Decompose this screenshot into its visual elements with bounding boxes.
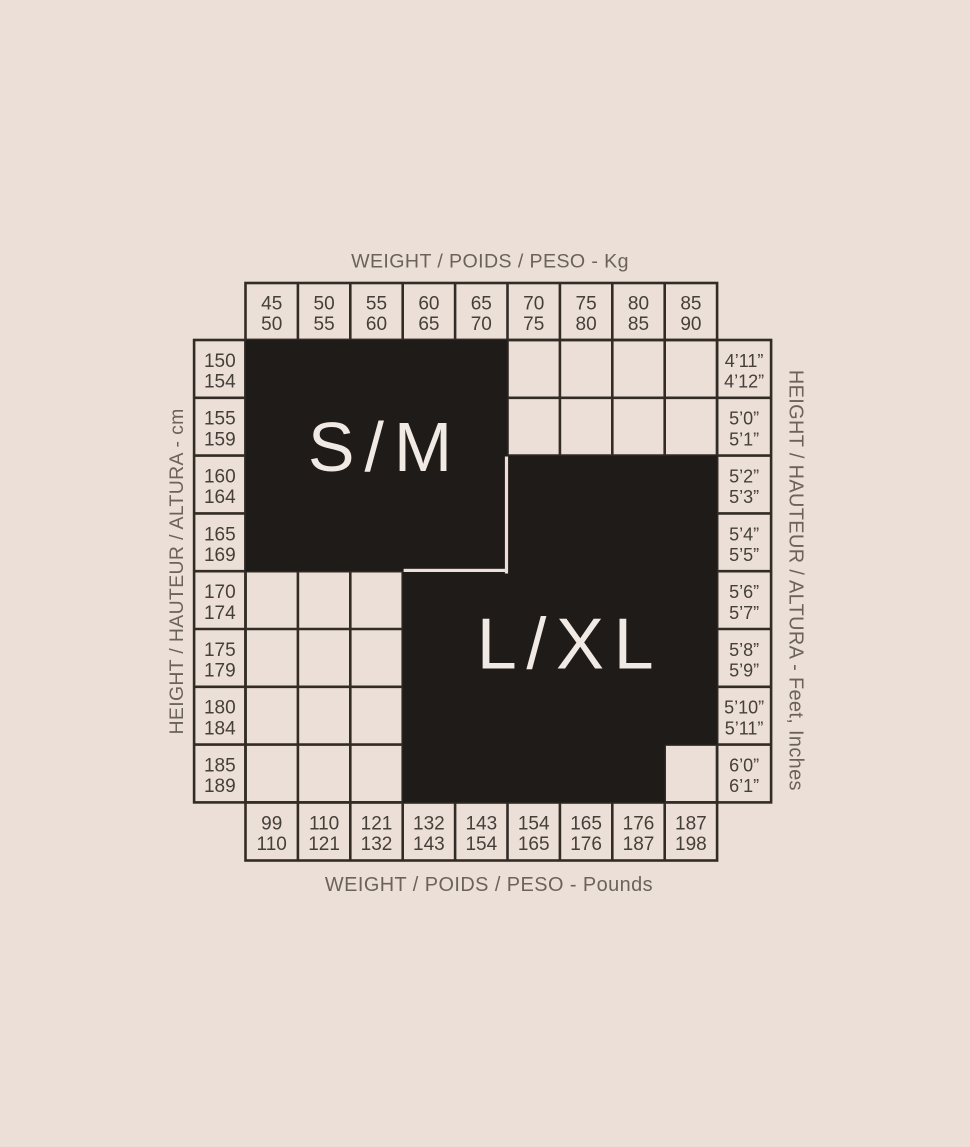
svg-text:4’11”: 4’11” bbox=[725, 351, 764, 371]
svg-text:5’6”: 5’6” bbox=[729, 582, 759, 602]
svg-text:5’11”: 5’11” bbox=[725, 718, 764, 738]
svg-text:5’5”: 5’5” bbox=[729, 545, 759, 565]
svg-text:HEIGHT / HAUTEUR / ALTURA - Fe: HEIGHT / HAUTEUR / ALTURA - Feet, Inches bbox=[785, 370, 807, 791]
svg-text:5’7”: 5’7” bbox=[729, 603, 759, 623]
svg-text:45: 45 bbox=[261, 294, 282, 315]
svg-text:179: 179 bbox=[204, 661, 236, 682]
svg-text:WEIGHT / POIDS / PESO - Pounds: WEIGHT / POIDS / PESO - Pounds bbox=[325, 874, 653, 896]
svg-text:5’3”: 5’3” bbox=[729, 487, 759, 507]
svg-text:143: 143 bbox=[413, 834, 445, 855]
svg-text:184: 184 bbox=[204, 718, 236, 739]
svg-text:121: 121 bbox=[308, 834, 340, 855]
svg-text:50: 50 bbox=[261, 314, 282, 335]
svg-text:155: 155 bbox=[204, 409, 236, 430]
svg-text:80: 80 bbox=[576, 314, 597, 335]
svg-text:6’1”: 6’1” bbox=[729, 776, 759, 796]
svg-text:170: 170 bbox=[204, 582, 236, 603]
svg-text:5’2”: 5’2” bbox=[729, 467, 759, 487]
svg-text:185: 185 bbox=[204, 756, 236, 777]
svg-text:164: 164 bbox=[204, 487, 236, 508]
svg-text:90: 90 bbox=[680, 314, 701, 335]
svg-text:75: 75 bbox=[576, 294, 597, 315]
svg-text:80: 80 bbox=[628, 294, 649, 315]
svg-text:85: 85 bbox=[680, 294, 701, 315]
svg-text:60: 60 bbox=[366, 314, 387, 335]
svg-text:99: 99 bbox=[261, 814, 282, 835]
svg-text:85: 85 bbox=[628, 314, 649, 335]
svg-text:165: 165 bbox=[204, 524, 236, 545]
svg-text:159: 159 bbox=[204, 429, 236, 450]
svg-text:154: 154 bbox=[518, 814, 550, 835]
svg-text:132: 132 bbox=[361, 834, 393, 855]
svg-text:HEIGHT / HAUTEUR / ALTURA - cm: HEIGHT / HAUTEUR / ALTURA - cm bbox=[166, 408, 188, 734]
svg-text:70: 70 bbox=[471, 314, 492, 335]
svg-text:75: 75 bbox=[523, 314, 544, 335]
svg-text:5’8”: 5’8” bbox=[729, 640, 759, 660]
svg-text:S/M: S/M bbox=[308, 408, 462, 486]
svg-text:150: 150 bbox=[204, 351, 236, 372]
svg-text:5’9”: 5’9” bbox=[729, 661, 759, 681]
svg-text:60: 60 bbox=[418, 294, 439, 315]
svg-text:165: 165 bbox=[570, 814, 602, 835]
svg-text:187: 187 bbox=[675, 814, 707, 835]
svg-text:110: 110 bbox=[309, 814, 339, 835]
svg-text:65: 65 bbox=[471, 294, 492, 315]
svg-text:176: 176 bbox=[623, 814, 655, 835]
svg-text:132: 132 bbox=[413, 814, 445, 835]
svg-text:198: 198 bbox=[675, 834, 707, 855]
svg-text:5’10”: 5’10” bbox=[724, 698, 764, 718]
svg-text:165: 165 bbox=[518, 834, 550, 855]
svg-text:55: 55 bbox=[366, 294, 387, 315]
svg-text:160: 160 bbox=[204, 467, 236, 488]
svg-text:6’0”: 6’0” bbox=[729, 756, 759, 776]
svg-text:L/XL: L/XL bbox=[477, 605, 664, 685]
svg-text:121: 121 bbox=[361, 814, 393, 835]
svg-text:154: 154 bbox=[465, 834, 497, 855]
svg-text:143: 143 bbox=[465, 814, 497, 835]
svg-text:WEIGHT / POIDS / PESO - Kg: WEIGHT / POIDS / PESO - Kg bbox=[351, 251, 629, 273]
svg-text:174: 174 bbox=[204, 603, 236, 624]
svg-text:70: 70 bbox=[523, 294, 544, 315]
svg-text:176: 176 bbox=[570, 834, 602, 855]
svg-text:50: 50 bbox=[314, 294, 335, 315]
svg-text:5’1”: 5’1” bbox=[729, 429, 759, 449]
svg-text:175: 175 bbox=[204, 640, 236, 661]
svg-text:110: 110 bbox=[257, 834, 287, 855]
svg-text:65: 65 bbox=[418, 314, 439, 335]
svg-text:180: 180 bbox=[204, 698, 236, 719]
svg-text:4’12”: 4’12” bbox=[724, 372, 764, 392]
svg-text:5’4”: 5’4” bbox=[729, 524, 759, 544]
svg-text:5’0”: 5’0” bbox=[729, 409, 759, 429]
svg-text:189: 189 bbox=[204, 776, 236, 797]
svg-text:187: 187 bbox=[623, 834, 655, 855]
svg-text:169: 169 bbox=[204, 545, 236, 566]
svg-text:55: 55 bbox=[314, 314, 335, 335]
svg-text:154: 154 bbox=[204, 372, 236, 393]
